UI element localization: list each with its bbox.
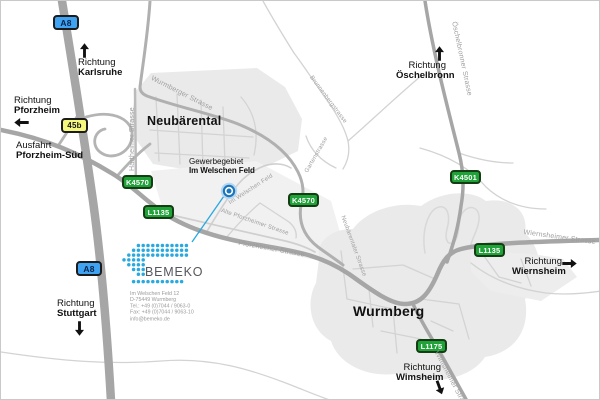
street-label-hartheimer: Hartheimer Strasse: [129, 107, 136, 171]
motorway-badge-a8-south: A8: [76, 261, 102, 276]
location-map: Richtung Karlsruhe Richtung Pforzheim Au…: [0, 0, 600, 400]
direction-pforzheim: Richtung Pforzheim: [14, 96, 60, 115]
poi-label-gewerbegebiet: Gewerbegebiet Im Welschen Feld: [189, 158, 255, 175]
company-logo-text: BEMEKO: [145, 265, 203, 279]
direction-wimsheim: Richtung Wimsheim: [396, 363, 441, 382]
route-badge-l1135-east: L1135: [474, 243, 505, 257]
direction-destination: Öschelbronn: [396, 71, 446, 81]
arrow-right-wiernsheim: [562, 259, 577, 268]
exit-label-pforzheim-sued: Ausfahrt Pforzheim-Süd: [16, 141, 83, 160]
exit-badge-45b: 45b: [61, 118, 88, 133]
arrow-left-pforzheim: [14, 118, 29, 127]
direction-destination: Wiernsheim: [512, 267, 562, 277]
town-label-wurmberg: Wurmberg: [353, 303, 424, 319]
arrow-up-oeschelbronn: [435, 46, 444, 61]
town-label-neubaerental: Neubärental: [147, 114, 221, 128]
address-fax: Fax: +49 (0)7044 / 9063-10: [130, 310, 194, 316]
direction-destination: Karlsruhe: [78, 68, 122, 78]
motorway-badge-a8-north: A8: [53, 15, 79, 30]
ramp-loop: [86, 114, 132, 156]
arrow-up-karlsruhe: [80, 43, 89, 58]
direction-oeschelbronn: Richtung Öschelbronn: [396, 61, 446, 80]
address-email: info@bemeko.de: [130, 316, 194, 322]
direction-wiernsheim: Richtung Wiernsheim: [512, 257, 562, 276]
route-badge-l1175: L1175: [416, 339, 447, 353]
direction-karlsruhe: Richtung Karlsruhe: [78, 58, 122, 77]
marker-dot: [227, 189, 232, 194]
route-badge-l1135-west: L1135: [143, 205, 174, 219]
arrow-down-stuttgart: [75, 321, 84, 336]
route-badge-k4570-mid: K4570: [288, 193, 319, 207]
direction-destination: Stuttgart: [57, 309, 97, 319]
company-address-block: Im Welschen Feld 12 D-75449 Wurmberg Tel…: [130, 291, 194, 323]
exit-name: Pforzheim-Süd: [16, 151, 83, 161]
route-badge-k4501: K4501: [450, 170, 481, 184]
poi-line2: Im Welschen Feld: [189, 167, 255, 176]
direction-destination: Pforzheim: [14, 106, 60, 116]
route-badge-k4570-west: K4570: [122, 175, 153, 189]
direction-stuttgart: Richtung Stuttgart: [57, 299, 97, 318]
